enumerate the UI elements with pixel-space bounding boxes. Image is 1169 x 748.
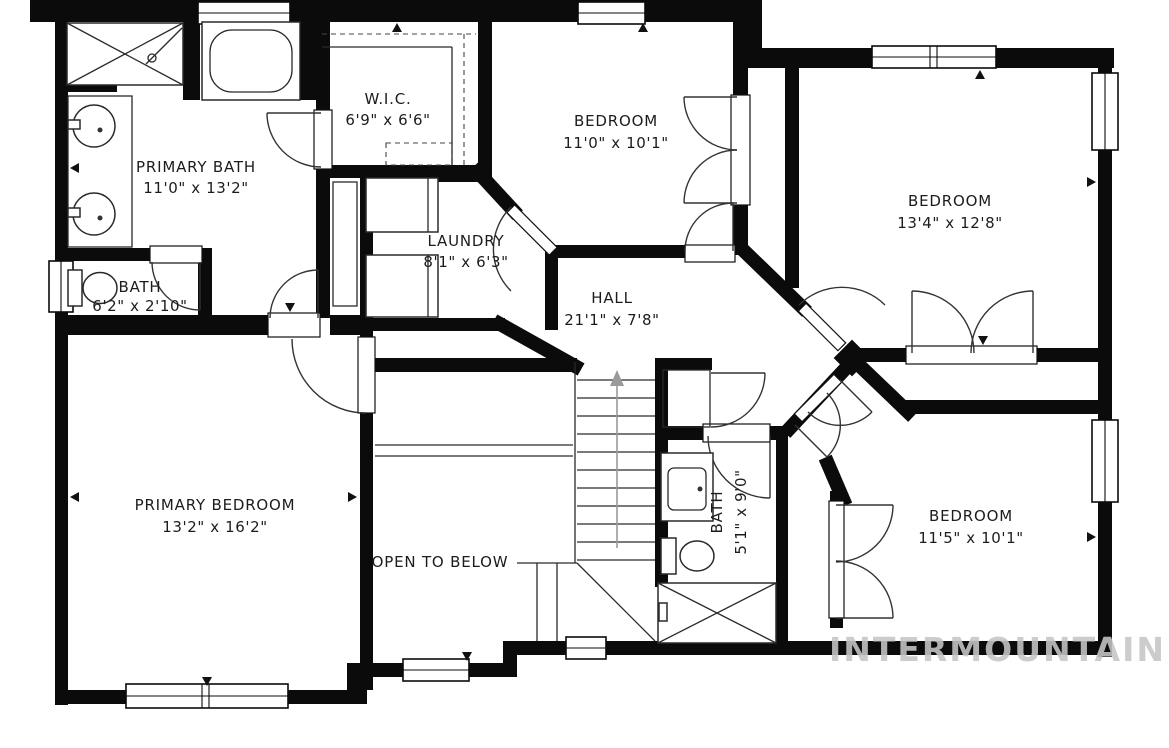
stairs bbox=[517, 362, 655, 641]
hall-closet bbox=[663, 370, 710, 427]
room-label-bath-middle: BATH bbox=[708, 490, 726, 533]
shower bbox=[67, 23, 183, 85]
diagonal-walls bbox=[478, 172, 908, 499]
room-dims-primary-bedroom: 13'2" x 16'2" bbox=[162, 518, 268, 536]
room-dims-wic: 6'9" x 6'6" bbox=[345, 111, 430, 129]
room-label-bedroom-right: BEDROOM bbox=[908, 192, 992, 210]
watermark: INTERMOUNTAIN bbox=[829, 630, 1166, 669]
room-dims-bedroom-top: 11'0" x 10'1" bbox=[563, 134, 669, 152]
room-label-hall: HALL bbox=[591, 289, 632, 307]
room-label-bedroom-top: BEDROOM bbox=[574, 112, 658, 130]
window bbox=[198, 2, 290, 24]
floor-plan-drawing: PRIMARY BATH 11'0" x 13'2" W.I.C. 6'9" x… bbox=[0, 0, 1169, 748]
room-label-bedroom-bottom: BEDROOM bbox=[929, 507, 1013, 525]
room-label-primary-bedroom: PRIMARY BEDROOM bbox=[135, 496, 296, 514]
room-label-bath-left: BATH bbox=[118, 278, 161, 296]
room-dims-primary-bath: 11'0" x 13'2" bbox=[143, 179, 249, 197]
linen-closet bbox=[333, 182, 357, 306]
vanity-sink bbox=[661, 453, 713, 521]
room-dims-bath-middle: 5'1" x 9'0" bbox=[732, 469, 750, 554]
window bbox=[403, 659, 469, 681]
shower bbox=[658, 583, 776, 643]
room-label-open-to-below: OPEN TO BELOW bbox=[372, 553, 509, 571]
washer bbox=[366, 178, 438, 232]
window bbox=[872, 46, 996, 68]
room-dims-bedroom-right: 13'4" x 12'8" bbox=[897, 214, 1003, 232]
window bbox=[1092, 73, 1118, 150]
window bbox=[1092, 420, 1118, 502]
window bbox=[566, 637, 606, 659]
room-dims-laundry: 8'1" x 6'3" bbox=[423, 253, 508, 271]
window bbox=[126, 684, 288, 708]
bathtub bbox=[202, 22, 300, 100]
floor-plan: PRIMARY BATH 11'0" x 13'2" W.I.C. 6'9" x… bbox=[0, 0, 1169, 748]
stairs-up-arrow-icon bbox=[610, 370, 624, 548]
open-to-below-ledge bbox=[375, 445, 573, 456]
room-label-laundry: LAUNDRY bbox=[428, 232, 505, 250]
toilet bbox=[661, 538, 714, 574]
window bbox=[578, 2, 645, 24]
room-dims-bath-left: 6'2" x 2'10" bbox=[92, 297, 187, 315]
room-dims-bedroom-bottom: 11'5" x 10'1" bbox=[918, 529, 1024, 547]
room-label-primary-bath: PRIMARY BATH bbox=[136, 158, 256, 176]
room-dims-hall: 21'1" x 7'8" bbox=[564, 311, 659, 329]
room-label-wic: W.I.C. bbox=[364, 90, 411, 108]
